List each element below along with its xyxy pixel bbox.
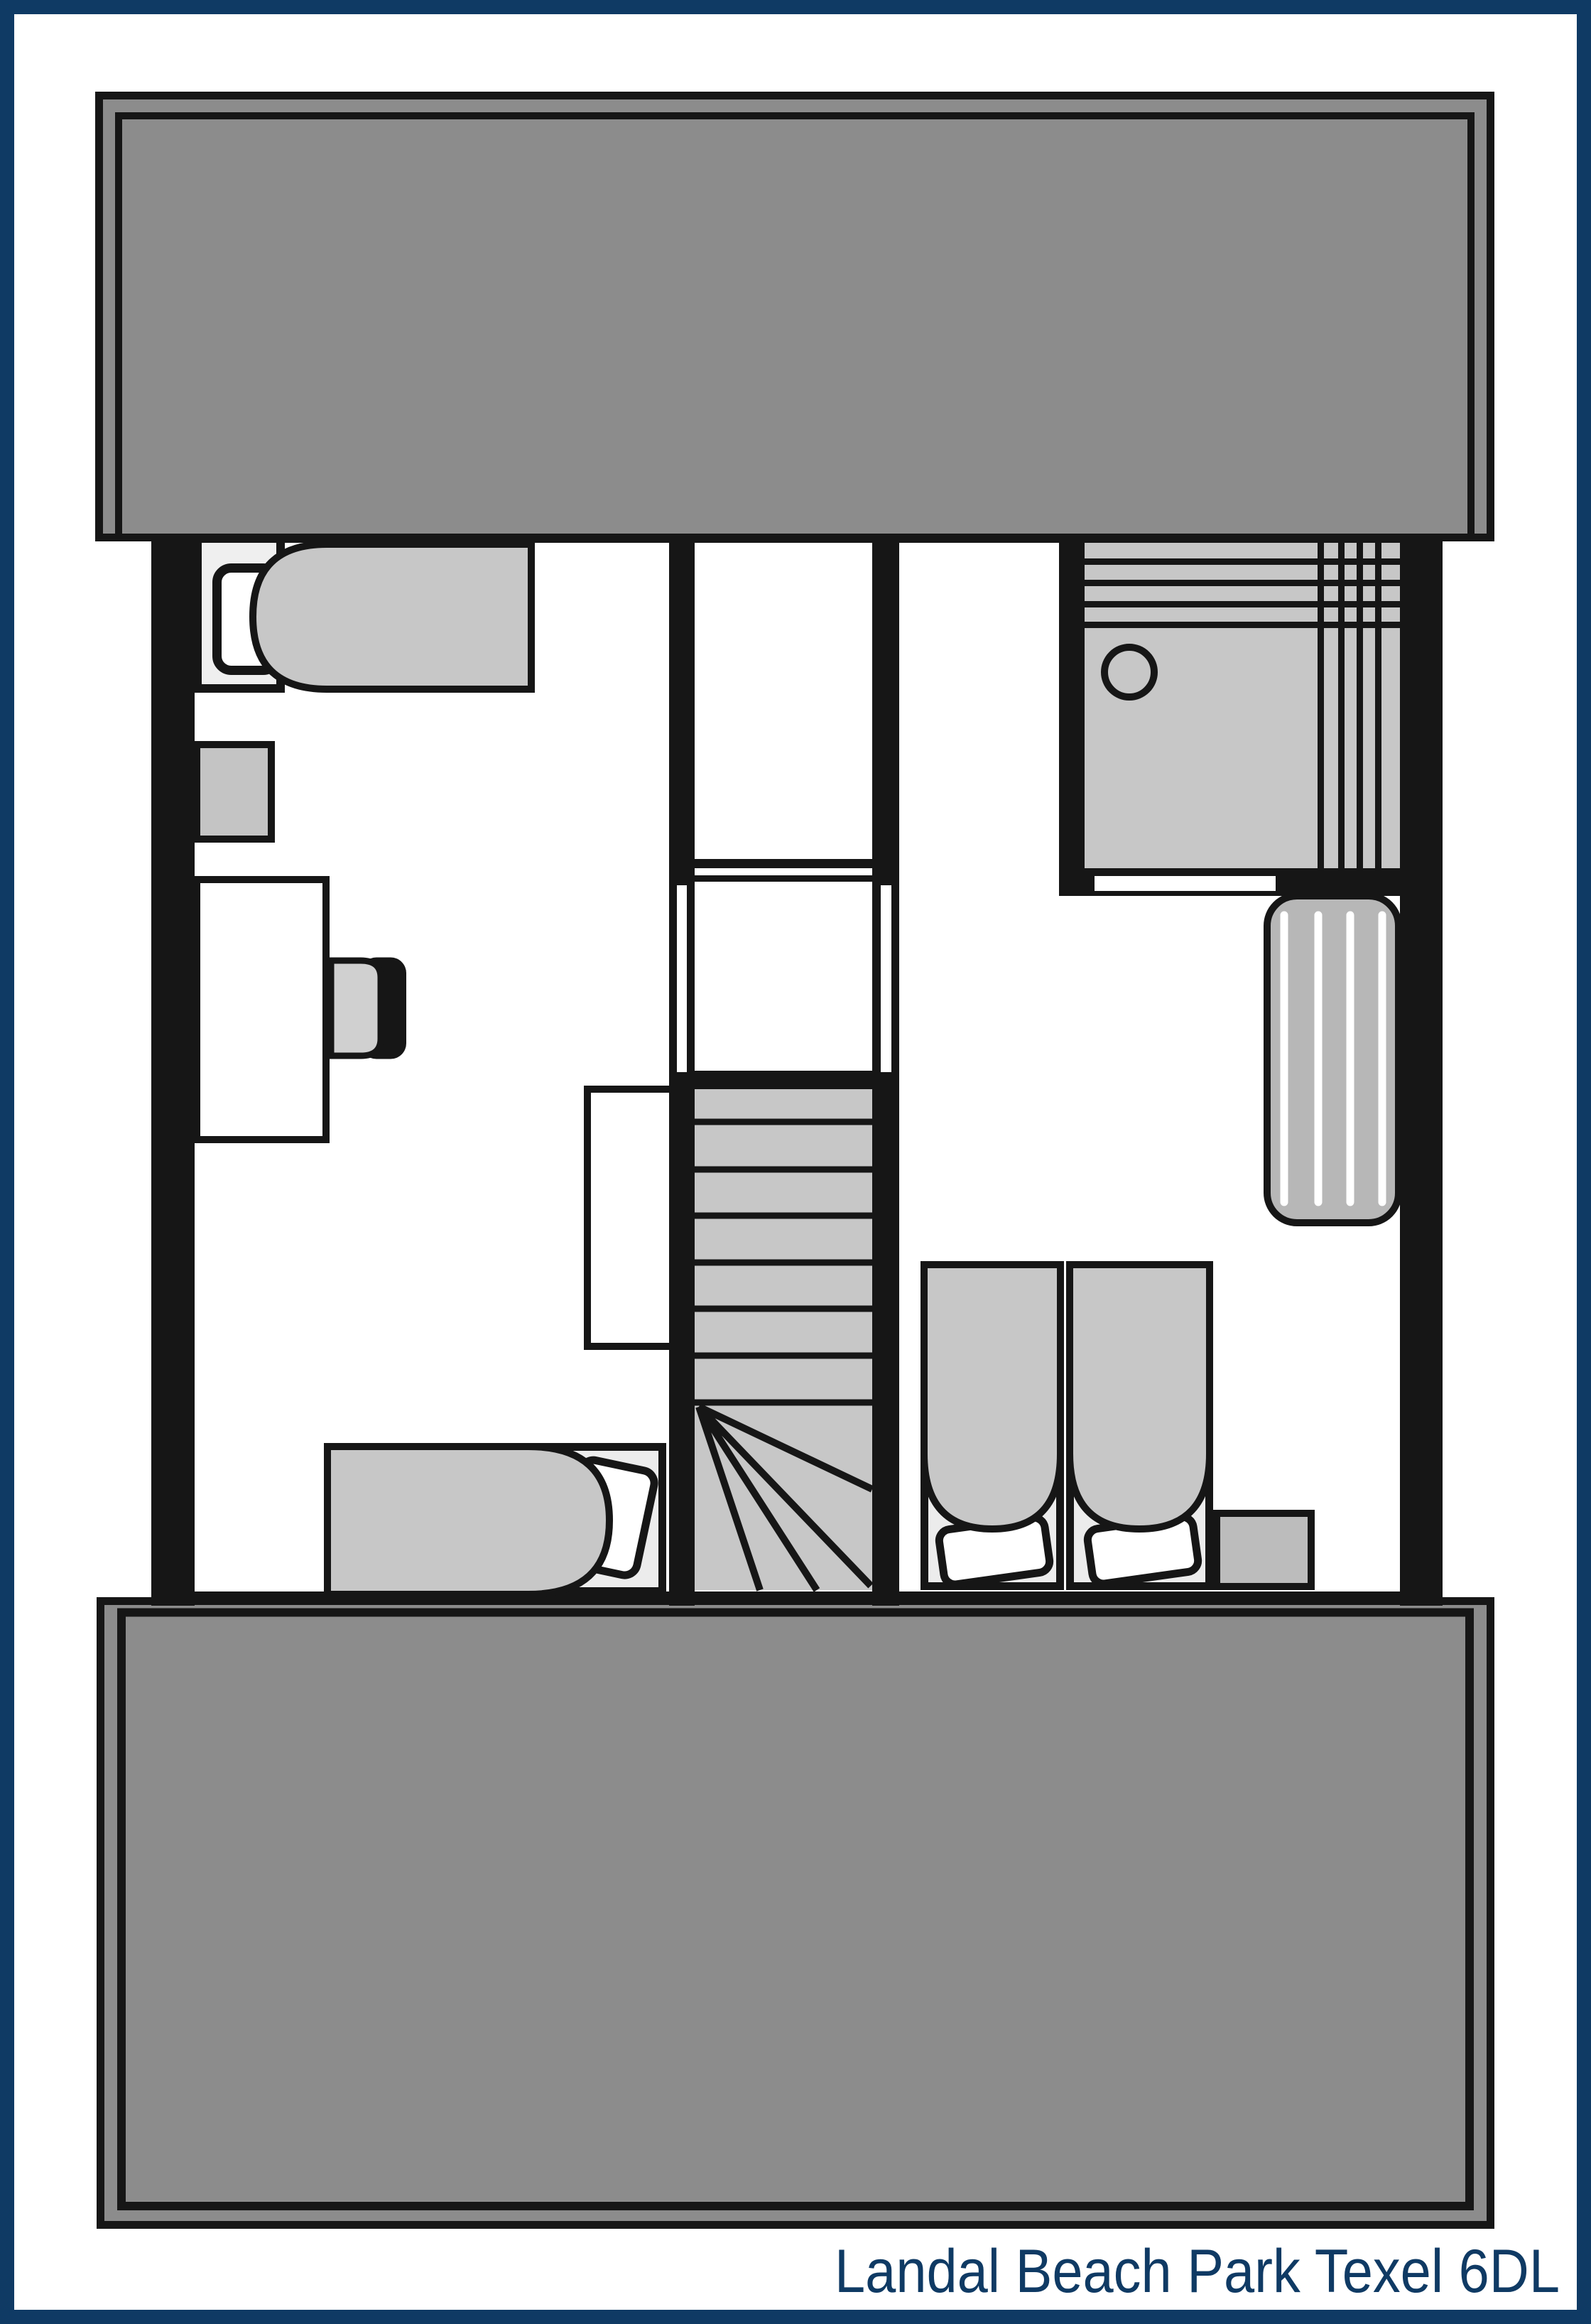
- svg-text:Landal Beach Park Texel 6DL: Landal Beach Park Texel 6DL: [835, 2237, 1560, 2306]
